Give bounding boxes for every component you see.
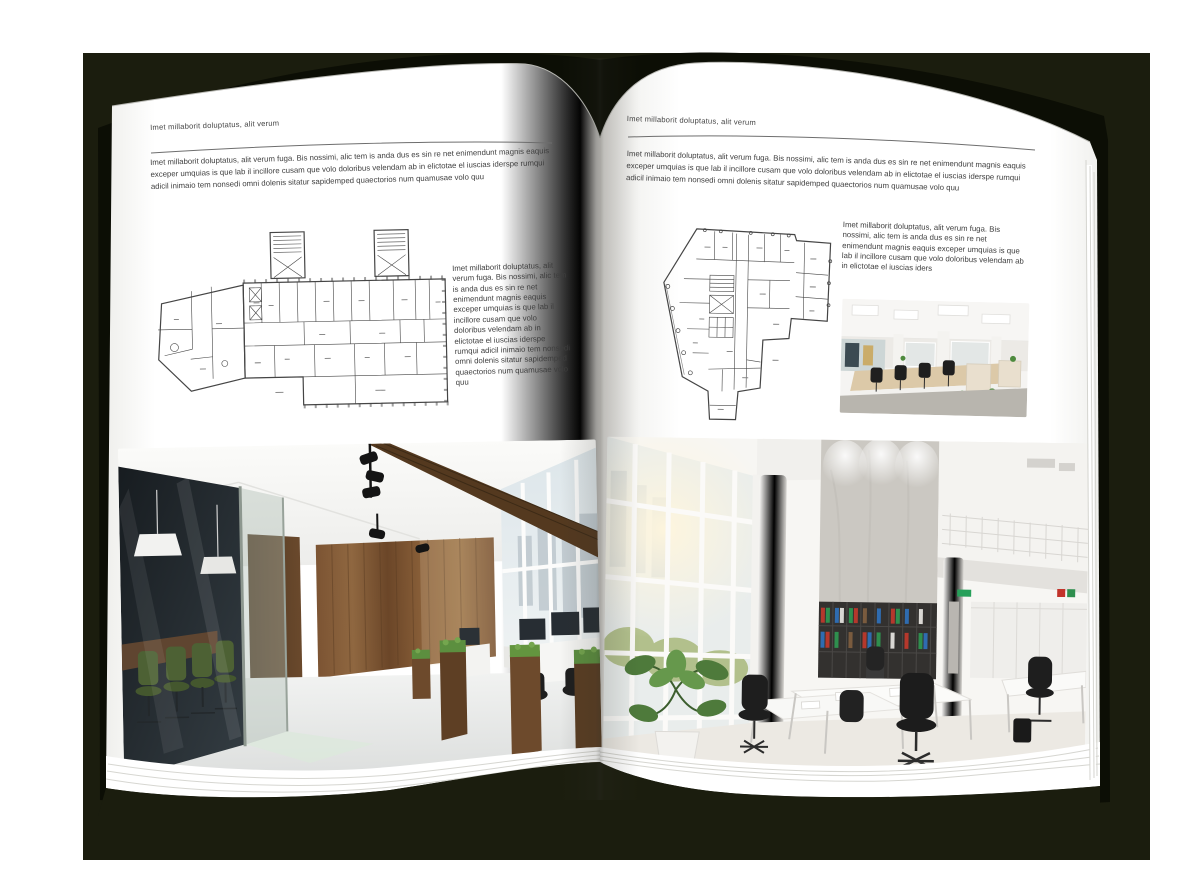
left-page-caption: Imet millaborit doluptatus, alit verum f… bbox=[452, 260, 572, 388]
left-office-photo bbox=[118, 439, 602, 778]
magazine-mockup-canvas: Imet millaborit doluptatus, alit verum I… bbox=[0, 0, 1200, 891]
left-floor-plan bbox=[152, 224, 451, 415]
right-office-photo-small bbox=[840, 299, 1030, 418]
right-office-photo-large bbox=[603, 437, 1090, 776]
right-floor-plan bbox=[641, 218, 840, 426]
right-page-caption: Imet millaborit doluptatus, alit verum f… bbox=[841, 220, 1027, 278]
